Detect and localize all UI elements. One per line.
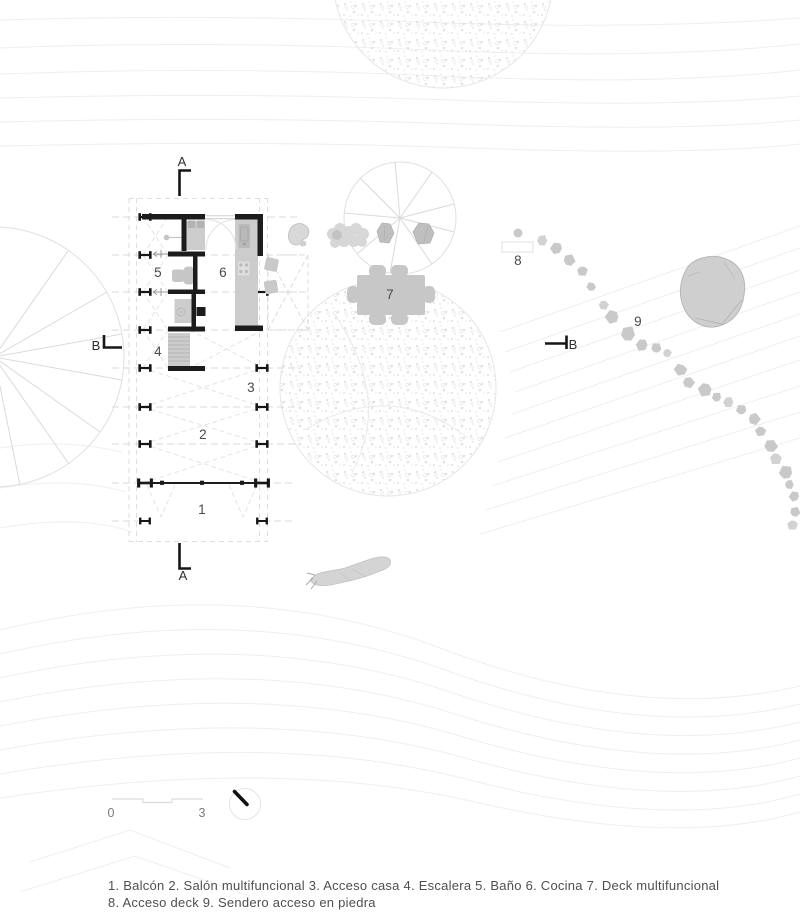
shower-head-icon [164,235,170,241]
section-mark-a-bottom [180,543,192,569]
scale-end-label: 3 [199,806,206,820]
path-stone [764,440,778,452]
path-stone [698,383,712,396]
scale-bar: 0 3 [108,799,206,820]
path-stone [564,254,576,266]
staircase [168,333,190,366]
palm-tree-left-edge [0,227,124,487]
shrub-cluster [327,223,369,248]
path-stone [790,507,800,517]
door-swing-arcs [205,216,236,250]
access-step-outline [502,242,533,252]
path-stone [770,454,782,465]
path-stone [755,427,766,437]
room-label-3: 3 [247,380,255,395]
stone-path-sendero [537,235,800,530]
room-label-1: 1 [198,502,206,517]
toilet-fixture [172,267,194,285]
legend: 1. Balcón 2. Salón multifuncional 3. Acc… [108,878,719,910]
north-arrow [230,789,261,820]
path-stone [537,235,547,246]
path-stone [577,267,588,276]
room-label-8: 8 [514,253,522,268]
path-stone [663,349,672,357]
floor-plan-page: A A B B 1 2 3 4 5 6 7 8 9 0 3 1. Balcón … [0,0,800,914]
section-letter-a-bottom: A [179,568,188,583]
deck-access-area [502,229,533,253]
room-label-7: 7 [386,287,394,302]
fallen-log [306,557,391,589]
path-stone [674,364,688,376]
room-label-6: 6 [219,265,227,280]
palm-tree-center [344,162,456,274]
legend-line-1: 1. Balcón 2. Salón multifuncional 3. Acc… [108,878,719,893]
room-label-4: 4 [154,344,162,359]
path-stone [779,466,792,479]
tree-canopy-top [333,0,553,88]
path-stone [712,393,721,402]
path-stone [605,310,619,324]
path-stone [785,480,794,489]
room-label-5: 5 [154,265,162,280]
outdoor-stools [264,257,280,295]
path-stone [789,491,799,501]
large-boulder [680,256,744,327]
section-mark-b-right [545,336,567,350]
section-letter-b-left: B [92,338,101,353]
site-plan-drawing: A A B B 1 2 3 4 5 6 7 8 9 0 3 1. Balcón … [0,0,800,914]
stepping-stone [514,229,523,238]
section-letter-b-right: B [569,337,578,352]
room-label-9: 9 [634,314,642,329]
rock [377,223,394,243]
path-stone [586,282,596,291]
path-stone [550,243,562,255]
path-stone [723,397,733,407]
path-stone [787,521,798,530]
path-stone [651,343,661,352]
section-mark-a-top [180,171,192,197]
section-letter-a-top: A [178,154,187,169]
path-stone [749,413,761,425]
legend-line-2: 8. Acceso deck 9. Sendero acceso en pied… [108,895,376,910]
path-stone [599,301,609,310]
room-label-2: 2 [199,427,207,442]
path-stone [683,377,695,388]
scale-start-label: 0 [108,806,115,820]
stove-cooktop [238,261,251,276]
path-stone [621,326,635,340]
kitchen-sink [239,224,251,248]
